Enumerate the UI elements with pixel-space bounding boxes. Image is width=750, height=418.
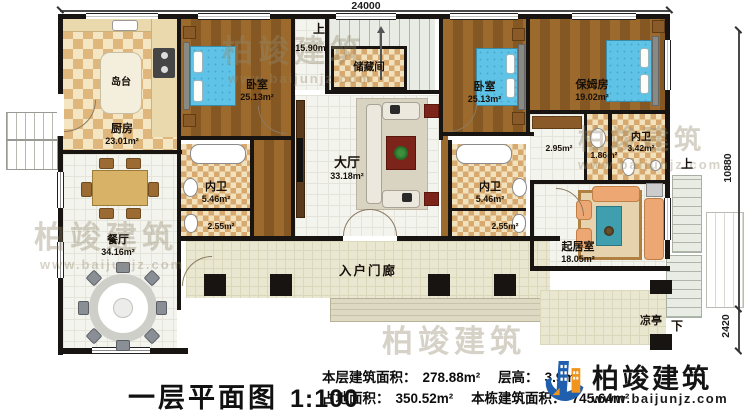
living-label: 起居室18.05m²	[546, 241, 610, 264]
living-sofa-top	[592, 186, 640, 202]
corridor-left-floor	[254, 140, 291, 236]
dining-window-1	[57, 172, 64, 208]
nightstand	[183, 26, 196, 39]
wall-nanny-bottom	[530, 110, 670, 114]
side-table	[424, 192, 439, 206]
bed-mid-pillow	[506, 54, 515, 74]
porch-label: 入户门廊	[318, 264, 418, 278]
bed-left-pillow	[193, 51, 203, 73]
dining-chair	[99, 158, 114, 169]
dim-line-right	[738, 30, 740, 352]
bed-nanny-pillow	[640, 74, 649, 94]
nanny-window	[572, 13, 636, 20]
hall-label: 大厅33.18m²	[315, 156, 379, 181]
wall-bedroom-mid-bottom	[439, 132, 534, 136]
bedroom-mid-label: 卧室25.13m²	[443, 81, 526, 104]
kitchen-counter-right	[151, 19, 177, 137]
dim-stair-right: 2420	[720, 306, 732, 346]
wall-bath-mid-divider	[452, 208, 526, 211]
wall-kitchen-bottom	[58, 150, 182, 154]
wall-bath-right-left	[608, 114, 612, 180]
nightstand	[652, 20, 665, 33]
closet-wardrobe	[532, 116, 582, 129]
wall-kitchen-right	[177, 14, 181, 154]
porch-column	[270, 274, 292, 296]
stair-hall-area: 15.90m²	[286, 43, 338, 53]
dining-table-rect	[92, 170, 148, 206]
porch-column	[428, 274, 450, 296]
bedroom-mid-window	[450, 13, 518, 20]
kitchen-label: 厨房23.01m²	[92, 123, 152, 146]
floor-area-value: 278.88m²	[423, 370, 481, 385]
toilet-left	[184, 214, 198, 233]
bed-left-headboard	[183, 42, 190, 110]
dining-label: 餐厅34.16m²	[88, 234, 148, 257]
corridor-mid-floor	[441, 136, 448, 236]
tv	[297, 138, 303, 182]
bathtub-mid	[456, 144, 512, 164]
wall-bath-left-divider	[181, 208, 250, 211]
storage-label: 储藏间	[331, 61, 407, 73]
bathtub-left	[190, 144, 246, 164]
bed-nanny-headboard	[652, 36, 659, 106]
wall-living-left	[530, 184, 534, 271]
wall-bedroom-mid-left	[439, 14, 443, 140]
wall-bath-mid-bottom	[448, 236, 560, 241]
hall-sofa-bottom	[382, 190, 420, 208]
land-area-label: 占地面积：	[322, 391, 390, 406]
bath-right-label: 内卫3.42m²	[618, 132, 664, 153]
round-chair	[116, 340, 130, 351]
hall-sofa-top	[382, 102, 420, 120]
dim-width-top: 24000	[338, 0, 394, 12]
wall-hall-left	[291, 95, 295, 241]
round-chair	[78, 301, 89, 315]
nanny-label: 保姆房19.02m²	[560, 79, 624, 102]
stair-window	[336, 13, 396, 20]
nanny-right-window	[664, 40, 671, 90]
wall-washroom-divider	[584, 114, 587, 180]
stove-burner-2	[161, 66, 168, 73]
pavilion-post-top	[650, 280, 672, 294]
bath-mid-label: 内卫5.46m²	[464, 181, 516, 204]
round-chair	[156, 301, 167, 315]
plan-title-text: 一层平面图	[128, 383, 278, 413]
round-chair	[116, 262, 130, 273]
dining-chair	[99, 208, 114, 219]
island-label: 岛台	[103, 77, 139, 89]
nightstand	[512, 112, 525, 125]
side-table	[424, 104, 439, 118]
dim-height-right: 10880	[722, 148, 734, 188]
wall-bath-left-bottom	[177, 236, 295, 241]
stove-burner-1	[161, 52, 168, 59]
wall-hall-bottom-a	[295, 236, 343, 241]
wall-bedroom-mid-right	[526, 14, 530, 136]
bedroom-left-window	[198, 13, 270, 20]
toilet-mid-area: 2.55m²	[482, 222, 528, 232]
stair-up-label: 上	[310, 23, 328, 37]
toilet-left-area: 2.55m²	[198, 222, 244, 232]
land-area-value: 350.52m²	[396, 391, 454, 406]
wall-living-bottom	[530, 266, 670, 271]
height-label: 层高：	[498, 370, 539, 385]
coffee-table-plant	[394, 146, 408, 160]
exterior-up-label: 上	[678, 158, 696, 172]
wash-basin	[590, 128, 606, 148]
bedroom-left-label: 卧室25.13m²	[225, 79, 289, 102]
tea-table-plant	[604, 226, 614, 236]
bath-left-label: 内卫5.46m²	[190, 181, 242, 204]
dining-chair	[148, 182, 159, 197]
living-end-table	[646, 183, 663, 197]
company-logo-icon	[543, 357, 589, 403]
dining-chair	[81, 182, 92, 197]
wall-dining-right	[177, 150, 181, 310]
porch-column	[494, 274, 516, 296]
shower-head	[650, 160, 661, 171]
dining-window-2	[57, 242, 64, 278]
company-website: www.baijunjz.com	[592, 391, 728, 406]
hall-cushion	[390, 105, 400, 114]
left-exterior-stairs	[6, 112, 58, 170]
kitchen-side-door-opening	[57, 94, 64, 136]
wall-bedroom-left-bottom	[177, 136, 295, 140]
hall-sofa-back	[366, 104, 382, 204]
wall-hall-bottom-b	[397, 236, 448, 241]
wall-bath-left-right	[250, 140, 254, 240]
pavilion-post-bottom	[650, 334, 672, 350]
wall-bath-mid-left	[448, 140, 452, 240]
hall-cushion	[402, 193, 412, 202]
nightstand	[183, 114, 196, 127]
left-stairs-rail	[6, 139, 58, 141]
dining-chair	[126, 208, 141, 219]
wall-stair-bottom	[325, 90, 439, 94]
bed-left-pillow	[193, 80, 203, 102]
exterior-down-label: 下	[668, 320, 686, 334]
living-sofa-right	[644, 198, 664, 260]
living-right-window	[664, 198, 671, 240]
dining-chair	[126, 158, 141, 169]
closet-area: 2.95m²	[538, 144, 580, 154]
nightstand	[512, 28, 525, 41]
round-table-center	[113, 298, 133, 318]
floor-area-label: 本层建筑面积：	[322, 370, 417, 385]
floor-plan-canvas: 柏竣建筑 www.baijunjz.com 柏竣建筑 www.baijunjz.…	[0, 0, 750, 418]
bed-nanny-pillow	[640, 48, 649, 68]
watermark: 柏竣建筑	[382, 316, 526, 361]
kitchen-sink	[112, 20, 138, 31]
exterior-stairs-up	[672, 175, 702, 253]
